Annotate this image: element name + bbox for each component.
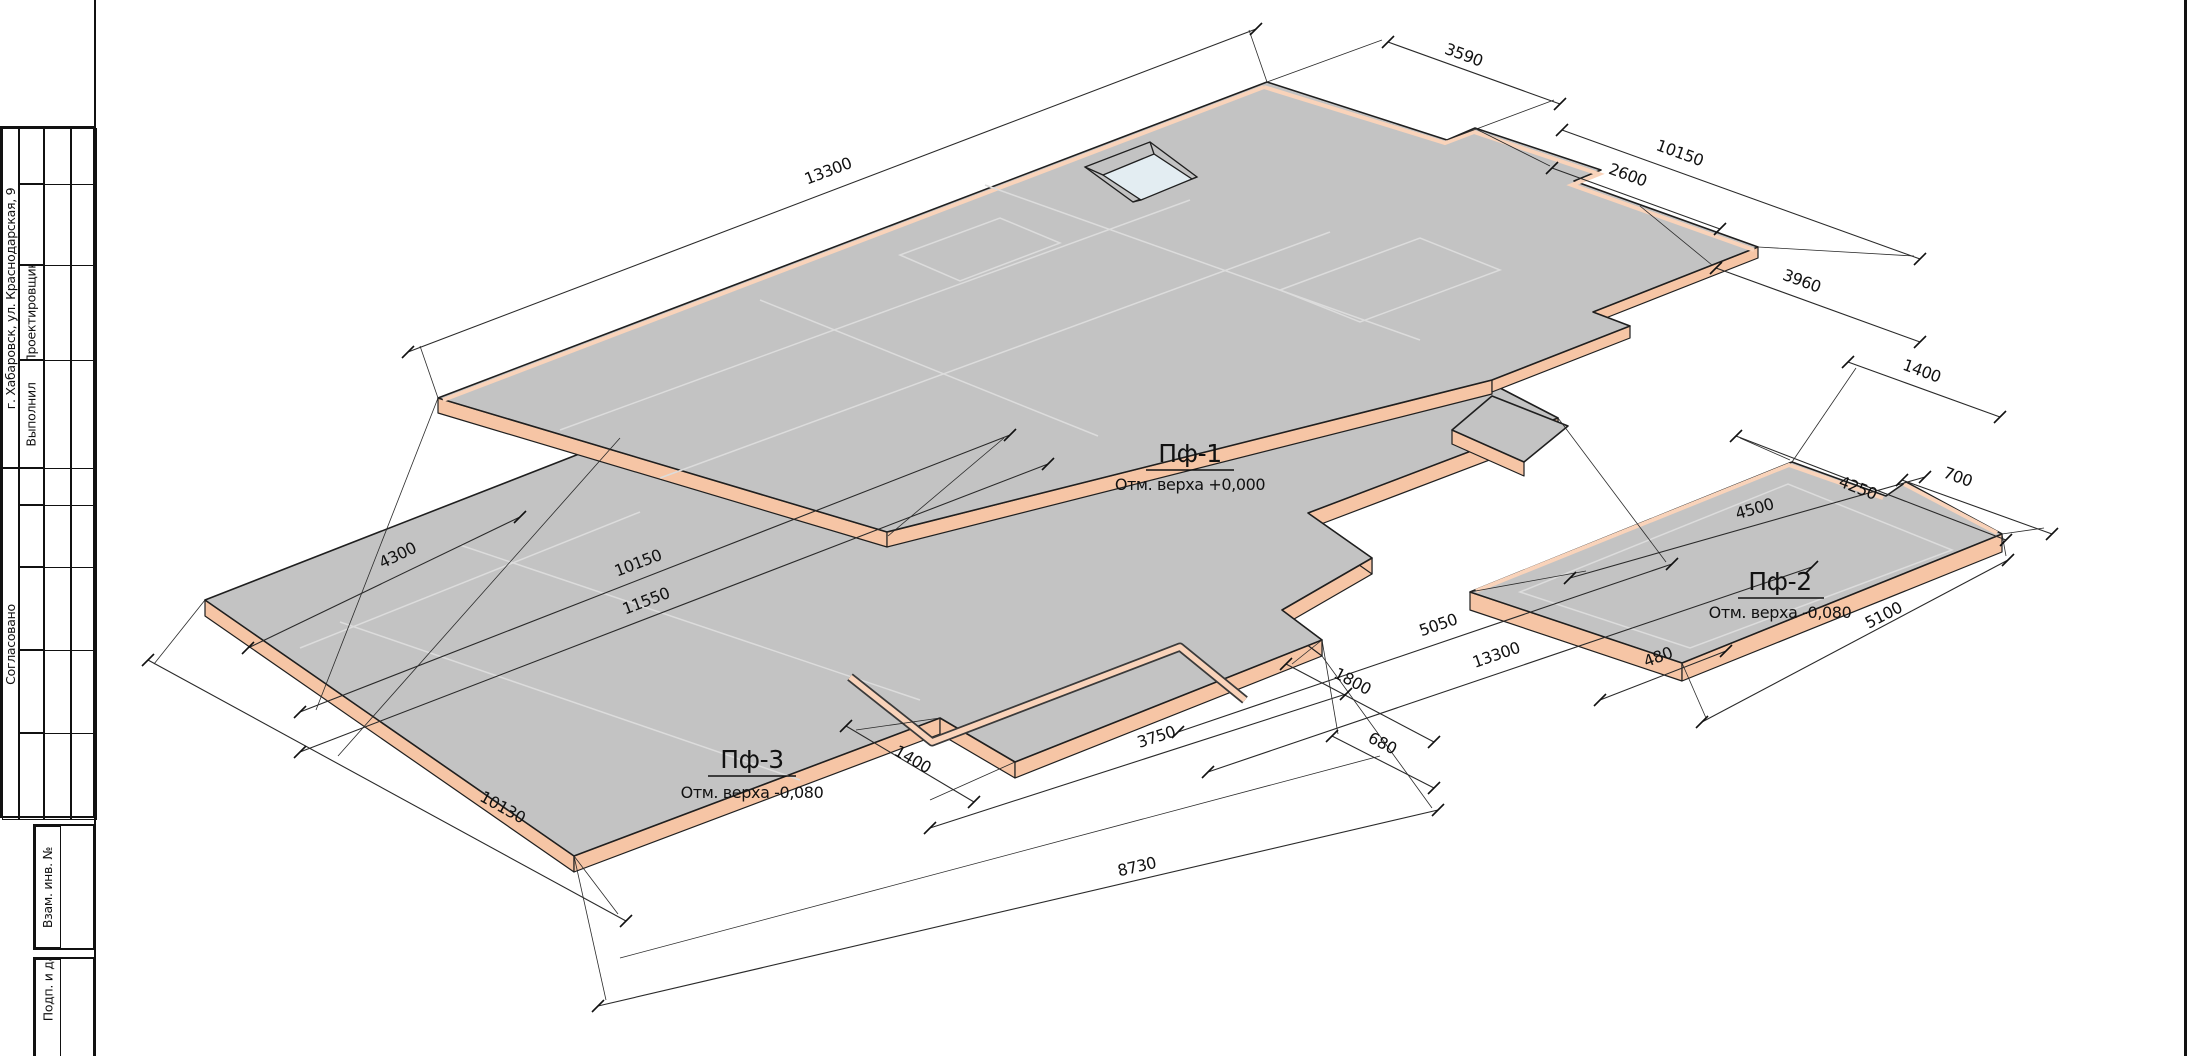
replacement-inv-cell: Взам. инв. № (35, 826, 61, 948)
signature-date-label: Подп. и дата (41, 959, 56, 1021)
address-text: г. Хабаровск, ул. Краснодарская, 9 (3, 187, 18, 408)
dimension-tick (294, 706, 306, 718)
replacement-inv-block: Взам. инв. № (33, 824, 95, 950)
dimension-tick (592, 1000, 604, 1012)
title-block-empty-cell (19, 128, 44, 184)
dim-5050: 5050 (1417, 609, 1460, 640)
title-block-empty-cell (19, 733, 44, 820)
pf2-label: Пф-2 (1748, 567, 1812, 596)
dim-2600: 2600 (1606, 159, 1649, 190)
title-block-empty-cell (19, 650, 44, 733)
dim-8730: 8730 (1116, 853, 1159, 880)
dimension-tick (402, 346, 414, 358)
drawing-sheet: 13300 3590 10150 2600 3960 1400 700 4250… (0, 0, 2208, 1056)
dimension-tick (620, 915, 632, 927)
title-block-empty-cell (19, 184, 44, 265)
replacement-inv-label: Взам. инв. № (41, 846, 56, 927)
dimension-tick (1994, 411, 2006, 423)
dimension-tick (1919, 471, 1931, 483)
title-block-empty-cell (19, 505, 44, 567)
dimension-tick (1428, 782, 1440, 794)
title-block-empty-cell (19, 567, 44, 650)
dimension-tick (1250, 23, 1262, 35)
dimension-tick (1202, 766, 1214, 778)
dimension-tick (1428, 736, 1440, 748)
designer-label: Проектировщик (24, 265, 39, 360)
axonometric-foundation-view: 13300 3590 10150 2600 3960 1400 700 4250… (0, 0, 2208, 1056)
dimension-tick (1696, 716, 1708, 728)
dimension-tick (1556, 124, 1568, 136)
title-block-row-line (44, 733, 97, 734)
title-block-row-line (44, 505, 97, 506)
frame-right-border (2184, 0, 2187, 1056)
dimension-tick (2002, 554, 2014, 566)
title-block-row-line (44, 265, 97, 266)
dimension-tick (1554, 98, 1566, 110)
title-block-row-line (44, 567, 97, 568)
title-block-row-line (44, 184, 97, 185)
pf2-slab (1470, 462, 2002, 681)
executor-label: Выполнил (24, 382, 39, 446)
dim-13300-bottom: 13300 (1470, 638, 1523, 672)
dim-10150-top: 10150 (1654, 136, 1707, 171)
dimension-tick (1382, 36, 1394, 48)
dim-700: 700 (1941, 463, 1975, 491)
agreed-label: Согласовано (3, 604, 18, 685)
dim-1400-bottom: 1400 (891, 741, 935, 777)
dimension-tick (2046, 528, 2058, 540)
dimension-tick (1432, 804, 1444, 816)
title-block-row-line (44, 468, 97, 469)
dimension-tick (294, 746, 306, 758)
title-block-row-line (44, 360, 97, 361)
dimension-tick (968, 796, 980, 808)
dimension-tick (1730, 430, 1742, 442)
title-block-address-cell: г. Хабаровск, ул. Краснодарская, 9 (2, 128, 19, 468)
title-block-agreed-cell: Согласовано (2, 468, 19, 820)
dim-3590: 3590 (1442, 39, 1485, 70)
dimension-tick (924, 822, 936, 834)
title-block-designer-cell: Проектировщик (19, 265, 44, 360)
dimension-tick (1594, 694, 1606, 706)
pf2-elevation: Отм. верха -0,080 (1709, 603, 1852, 622)
pf1-elevation: Отм. верха +0,000 (1115, 475, 1266, 494)
dim-13300-top: 13300 (802, 153, 855, 188)
signature-date-cell: Подп. и дата (35, 959, 61, 1056)
dimension-tick (1914, 253, 1926, 265)
dim-1800: 1800 (1331, 664, 1375, 699)
title-block-empty-cell (19, 468, 44, 505)
title-block-executor-cell: Выполнил (19, 360, 44, 468)
pf3-elevation: Отм. верха -0,080 (681, 783, 824, 802)
dim-680: 680 (1365, 728, 1400, 758)
dimension-tick (1842, 356, 1854, 368)
pf3-label: Пф-3 (720, 745, 784, 774)
dim-1400-right: 1400 (1900, 355, 1943, 386)
dimension-tick (1914, 336, 1926, 348)
title-block-signature-column (44, 128, 71, 820)
title-block-row-line (44, 650, 97, 651)
dim-3960: 3960 (1780, 265, 1823, 296)
title-block: г. Хабаровск, ул. Краснодарская, 9 Согла… (0, 126, 95, 818)
signature-date-block: Подп. и дата (33, 957, 95, 1056)
pf1-label: Пф-1 (1158, 439, 1222, 468)
dimension-tick (142, 654, 154, 666)
title-block-date-column (71, 128, 97, 820)
